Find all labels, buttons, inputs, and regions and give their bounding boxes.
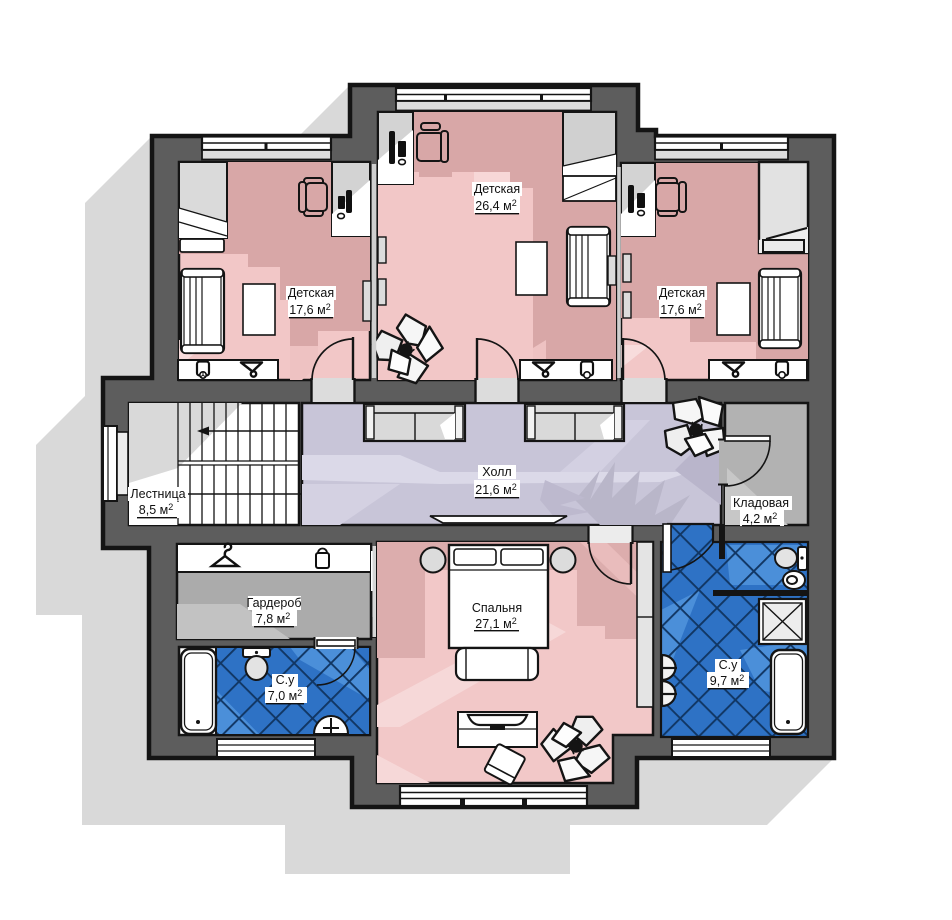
svg-text:26,4 м2: 26,4 м2 [475, 198, 516, 213]
svg-text:Холл: Холл [482, 465, 511, 479]
svg-text:Лестница: Лестница [130, 487, 185, 501]
svg-text:Кладовая: Кладовая [733, 496, 789, 510]
svg-text:21,6 м2: 21,6 м2 [475, 482, 516, 497]
svg-text:Детская: Детская [474, 182, 520, 196]
svg-text:8,5 м2: 8,5 м2 [139, 502, 173, 517]
svg-text:7,0 м2: 7,0 м2 [268, 688, 302, 703]
svg-text:С.у: С.у [276, 673, 296, 687]
svg-text:Детская: Детская [288, 286, 334, 300]
svg-text:С.у: С.у [719, 658, 739, 672]
svg-text:Гардероб: Гардероб [247, 596, 302, 610]
svg-text:Спальня: Спальня [472, 601, 522, 615]
svg-text:9,7 м2: 9,7 м2 [710, 673, 744, 688]
svg-text:7,8 м2: 7,8 м2 [256, 611, 290, 626]
svg-text:Детская: Детская [659, 286, 705, 300]
svg-text:17,6 м2: 17,6 м2 [289, 302, 330, 317]
svg-text:17,6 м2: 17,6 м2 [660, 302, 701, 317]
svg-text:27,1 м2: 27,1 м2 [475, 616, 516, 631]
svg-text:4,2 м2: 4,2 м2 [743, 511, 777, 526]
